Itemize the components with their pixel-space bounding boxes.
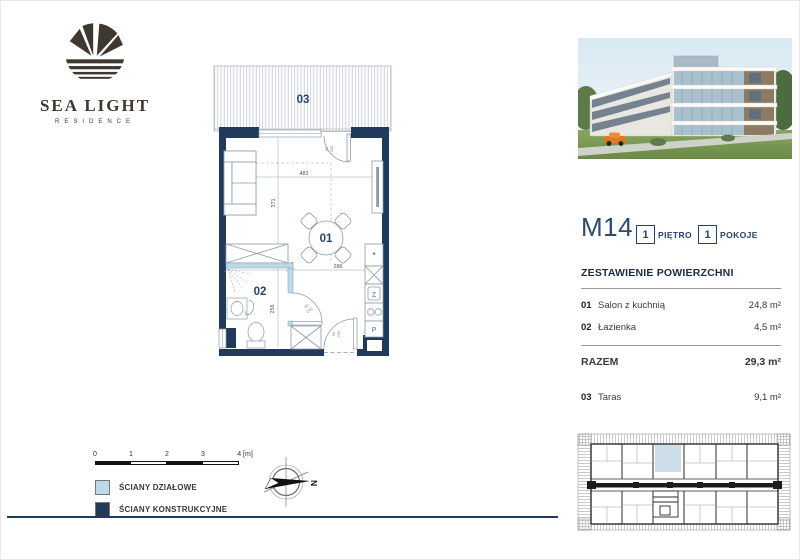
rooms-number-box: 1 bbox=[698, 225, 717, 244]
table-row: 03 Taras 9,1 m² bbox=[581, 392, 781, 403]
brochure-page: SEA LIGHT RESIDENCE 03 bbox=[0, 0, 800, 560]
hall-cabinet bbox=[291, 326, 321, 349]
scale-tick: 4 [m] bbox=[237, 451, 253, 458]
terrace-door bbox=[321, 132, 351, 163]
row-area: 4,5 m² bbox=[754, 322, 781, 333]
sofa bbox=[224, 151, 256, 215]
floor-plan: 03 90 bbox=[197, 57, 405, 363]
wardrobe bbox=[226, 244, 288, 263]
table-divider bbox=[581, 345, 781, 346]
row-name: Taras bbox=[598, 392, 754, 403]
row-number: 01 bbox=[581, 300, 598, 311]
entrance-door-size: 90 200 bbox=[331, 330, 341, 337]
total-area: 29,3 m² bbox=[745, 356, 781, 368]
sea-light-logo-icon bbox=[58, 17, 132, 89]
bathroom-label: 02 bbox=[254, 286, 267, 298]
row-name: Łazienka bbox=[598, 322, 754, 333]
highlighted-unit bbox=[655, 445, 681, 472]
row-number: 02 bbox=[581, 322, 598, 333]
partition-walls-swatch bbox=[95, 480, 110, 495]
total-row: RAZEM 29,3 m² bbox=[581, 356, 781, 368]
brand-name: SEA LIGHT bbox=[29, 96, 161, 116]
scale-tick: 1 bbox=[129, 451, 133, 458]
rooms-label: POKOJE bbox=[720, 230, 758, 240]
row-area: 9,1 m² bbox=[754, 392, 781, 403]
scale-segment bbox=[95, 461, 131, 465]
legend-label: ŚCIANY DZIAŁOWE bbox=[119, 483, 197, 492]
north-label: N bbox=[309, 480, 317, 486]
terrace-label: 03 bbox=[297, 94, 310, 106]
legend-label: ŚCIANY KONSTRUKCYJNE bbox=[119, 505, 227, 514]
area-table-title: ZESTAWIENIE POWIERZCHNI bbox=[581, 267, 781, 289]
legend-item: ŚCIANY DZIAŁOWE bbox=[95, 480, 227, 495]
scale-segment bbox=[203, 461, 239, 465]
brand-tagline: RESIDENCE bbox=[29, 119, 161, 125]
dim-bath-height: 256 bbox=[270, 305, 276, 314]
dim-living-width: 482 bbox=[300, 171, 309, 177]
unit-code: M14 bbox=[581, 212, 633, 243]
floor-overview-plan bbox=[569, 429, 799, 535]
building-photo bbox=[578, 38, 792, 159]
walls-legend: ŚCIANY DZIAŁOWE ŚCIANY KONSTRUKCYJNE bbox=[95, 473, 227, 517]
living-room-label: 01 bbox=[320, 233, 333, 245]
dim-living-height: 371 bbox=[271, 199, 277, 208]
row-area: 24,8 m² bbox=[749, 300, 781, 311]
svg-text:200: 200 bbox=[336, 330, 341, 337]
fridge-symbol: * bbox=[372, 251, 375, 260]
tv-unit bbox=[372, 161, 383, 213]
footer-divider bbox=[7, 516, 558, 518]
window-left bbox=[219, 329, 226, 348]
scale-tick: 3 bbox=[201, 451, 205, 458]
row-number: 03 bbox=[581, 392, 598, 403]
floor-label: PIĘTRO bbox=[658, 230, 692, 240]
washer-label: P bbox=[372, 327, 377, 334]
table-row: 02 Łazienka 4,5 m² bbox=[581, 322, 781, 333]
scale-segment bbox=[131, 461, 167, 465]
wall-niche bbox=[367, 340, 382, 351]
scale-tick: 0 bbox=[93, 451, 97, 458]
sink-label: Z bbox=[372, 292, 377, 299]
floor-number-box: 1 bbox=[636, 225, 655, 244]
scale-segment bbox=[167, 461, 203, 465]
row-name: Salon z kuchnią bbox=[598, 300, 749, 311]
scale-bar: 0 1 2 3 4 [m] bbox=[93, 451, 273, 471]
svg-text:230: 230 bbox=[329, 145, 334, 152]
scale-tick: 2 bbox=[165, 451, 169, 458]
staircase bbox=[653, 491, 678, 517]
bathroom-door-size: 80 200 bbox=[302, 302, 314, 314]
terrace-area: 03 bbox=[214, 66, 391, 131]
brand-logo: SEA LIGHT RESIDENCE bbox=[29, 17, 161, 125]
window-top bbox=[259, 130, 321, 137]
total-label: RAZEM bbox=[581, 356, 745, 368]
dim-kitchen-width: 286 bbox=[334, 264, 343, 270]
structural-walls-swatch bbox=[95, 502, 110, 517]
table-row: 01 Salon z kuchnią 24,8 m² bbox=[581, 300, 781, 311]
legend-item: ŚCIANY KONSTRUKCYJNE bbox=[95, 502, 227, 517]
compass: N bbox=[255, 451, 317, 513]
area-table: ZESTAWIENIE POWIERZCHNI 01 Salon z kuchn… bbox=[581, 267, 781, 403]
